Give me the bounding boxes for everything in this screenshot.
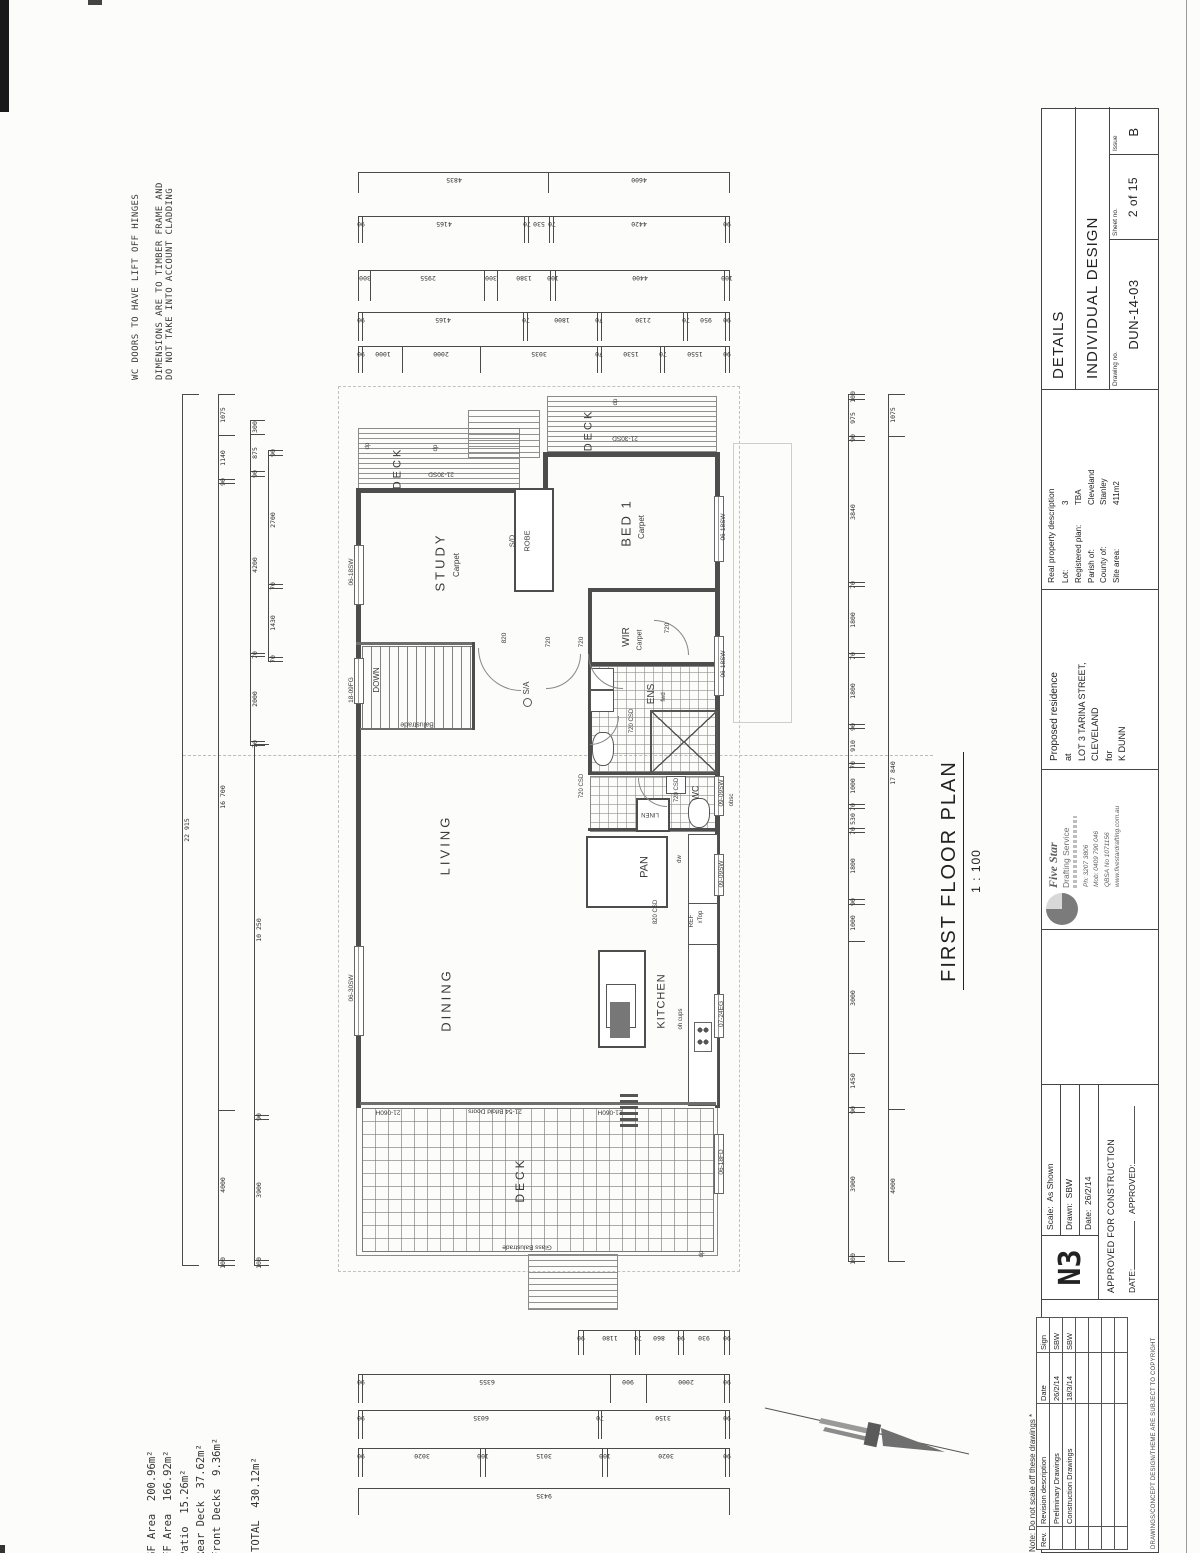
dim-value: 3035 [531,350,547,358]
dim-chain-b2: 906355900200090 [358,1374,730,1403]
cooktop [694,1022,712,1052]
date-label: Date: [1083,1210,1093,1230]
plan-label: 06-18SW [349,558,356,585]
dim-segment: 2000 [251,656,265,741]
dim-segment: 90 [725,217,730,243]
dim-segment: 300 [251,420,265,434]
details-title: DETAILS [1042,107,1076,389]
revision-row [1076,1318,1089,1550]
dim-value: 22 915 [183,818,191,841]
dim-segment: 860 [639,1331,677,1355]
dim-value: 4200 [251,557,259,573]
revision-header: Sign [1037,1318,1050,1353]
decorative: Date: 26/2/14 [1080,1085,1099,1235]
drawing-no-value: DUN-14-03 [1126,240,1141,389]
dim-value: 300 [251,421,259,433]
revision-cell-value [1089,1527,1102,1550]
dim-segment: 1140 [219,435,235,479]
dim-value: 3000 [849,990,857,1006]
dim-chain-L1: 22 915 [182,394,199,1266]
wall [356,642,475,645]
dim-value: 100 [255,1257,263,1269]
dim-value: 910 [849,740,857,752]
dim-value: 1550 [687,350,703,358]
dim-value: 100 [219,1257,227,1269]
dim-value: 530 [533,220,545,228]
dim-value: 4835 [446,176,462,184]
dim-value: 875 [251,447,259,459]
property-field: Registered plan:TBA [1073,390,1086,583]
plan-label: fwd [661,692,667,701]
bifold-door-line [360,1102,716,1105]
front-steps [528,1254,618,1310]
dim-value: 4000 [219,1178,227,1194]
revision-cell-value [1050,1527,1063,1550]
plan-label: DINING [440,968,453,1032]
property-field-value: 411m2 [1111,481,1124,505]
plan-label: STUDY [434,532,447,591]
area-line: Patio 15.26m² [177,1353,193,1553]
dim-chain-t5: 9010002000303570153070155090 [358,346,730,373]
area-total-text: TOTAL 430.12m² [248,1382,264,1552]
date-line-label: DATE: [1127,1269,1137,1293]
revision-row [1089,1318,1102,1550]
plan-label: ROBE [523,530,531,551]
dim-segment: 4165 [362,217,524,243]
plan-label: DECK [514,1157,526,1202]
revision-cell-value [1089,1404,1102,1527]
dim-value: 1000 [849,778,857,794]
sheet-no-value: 2 of 15 [1126,155,1140,239]
revision-cell-value: 26/2/14 [1050,1353,1063,1404]
scan-artifact [0,1545,5,1553]
dim-segment: 100 [724,271,730,301]
revision-cell-value [1076,1404,1089,1527]
revision-cell-value [1115,1527,1128,1550]
revision-cell-value [1115,1318,1128,1353]
dim-segment: 6035 [362,1411,597,1439]
dim-value: 100 [721,274,733,282]
window [354,545,364,605]
dim-segment: 1530 [601,347,661,373]
dim-value: 90 [723,1452,731,1460]
area-line: Front Decks 9.36m² [209,1353,225,1553]
plan-label: 09-09SW [719,860,726,887]
revision-header: Revision description [1037,1404,1050,1527]
plan-label: 21-060H [376,1108,401,1115]
property-header: Real property description [1046,390,1056,583]
scale-value: As Shown [1045,1163,1055,1201]
dim-value: 3020 [414,1452,430,1460]
dim-value: 3015 [536,1452,552,1460]
project-line: K DUNN [1116,590,1130,761]
dim-chain-t4: 9041657018007021307095090 [358,312,730,341]
dim-value: 6035 [473,1414,489,1422]
dim-value: 1380 [516,274,532,282]
revision-cell-value: Preliminary Drawings [1050,1404,1063,1527]
firm-tagline [1073,816,1077,888]
dim-value: 860 [653,1334,665,1342]
plan-label: DECK [393,447,404,490]
plan-label: dp [365,443,371,450]
plan-label: 09-09SW [719,779,726,806]
approved-line-label: APPROVED: [1127,1164,1137,1214]
plan-label: obsc [729,794,735,807]
dim-chain-b1: 901180708609093090 [578,1330,730,1355]
property-field-label: County of: [1098,505,1111,583]
dim-segment: 3150 [601,1411,724,1439]
island-sink-bowl [610,1002,630,1038]
dim-segment: 90 [725,313,730,341]
dim-value: 1000 [375,350,391,358]
dim-value: 1180 [602,1334,618,1342]
plan-label: 720 CSD [629,709,635,733]
issue-value: B [1126,110,1141,154]
window [354,946,364,1036]
dim-chain-L4: 90270070143070 [268,450,283,662]
dim-value: 4400 [632,274,648,282]
dim-segment: 875 [251,434,265,472]
dim-segment: 3840 [849,440,865,582]
dim-segment: 4200 [251,476,265,653]
revision-row [1102,1318,1115,1550]
revision-cell-value [1089,1353,1102,1404]
dim-segment: 9435 [358,1489,730,1515]
dim-value: 90 [723,1414,731,1422]
plan-label: DECK [584,409,595,452]
plan-label: 820 [502,633,509,644]
plan-label: 720 [546,637,553,648]
plan-label: WIR [622,627,632,646]
rear-deck-right [547,396,717,457]
dim-value: 100 [849,1253,857,1265]
property-field-value: Cleveland [1086,469,1099,505]
area-line: FF Area 166.92m² [160,1353,176,1553]
firm-cell: Five Star Drafting Service Ph: 3207 3806… [1042,769,1158,929]
dim-segment: 975 [849,399,865,436]
plan-label: 21-54 Bifold Doors [468,1107,522,1114]
bifold-stack [620,1094,638,1128]
plan-label: 720 CSD [579,774,585,798]
dim-segment: 10 250 [255,744,269,1115]
revision-cell-value [1115,1404,1128,1527]
decorative: N3 Scale: As Shown Drawn: SBW Date: 26/2… [1042,1085,1099,1299]
dim-value: 3150 [656,1414,672,1422]
property-field-value: Stanley [1098,478,1111,505]
details-cell: DETAILS INDIVIDUAL DESIGN Drawing no. DU… [1042,107,1158,389]
dim-segment: 2955 [370,271,484,301]
firm-logo [1046,893,1078,925]
dim-value: 6355 [479,1378,495,1386]
decorative: Real property description Lot:3Registere… [1042,390,1124,589]
project-line: for [1103,590,1117,761]
window [354,658,364,704]
dim-segment: 100 [849,1256,865,1262]
dim-value: 530 [849,813,857,825]
decorative: Five Star Drafting Service [1042,770,1078,929]
firm-contact-line: Mob: 0409 790 046 [1092,770,1102,887]
project-line: LOT 3 TARINA STREET, [1076,590,1090,761]
dim-chain-R2: 107517 8404000 [888,394,905,1262]
property-field-label: Parish of: [1086,505,1099,583]
sheet-edge-line [1186,0,1187,1553]
dim-segment: 1180 [583,1331,635,1355]
dim-note-line2: DO NOT TAKE INTO ACCOUNT CLADDING [165,110,175,380]
firm-contact: Ph: 3207 3806Mob: 0409 790 046QBSA No 10… [1078,770,1124,929]
dim-segment: 2000 [646,1375,725,1403]
dim-value: 950 [700,316,712,324]
plan-label: Carpet [638,515,646,539]
revision-table: Rev.Revision descriptionDateSignPrelimin… [1036,1317,1128,1550]
firm-contact-line: QBSA No 1071156 [1103,770,1113,887]
wall [472,642,475,730]
dim-segment: 1000 [362,347,401,373]
dim-segment: 1075 [219,394,235,435]
decorative: DATE: APPROVED: [1116,1085,1137,1299]
dim-value: 90 [723,220,731,228]
dim-value: 90 [723,316,731,324]
issue-cell: Issue B [1110,110,1158,154]
revision-cell: Note: Do not scale off these drawings * … [1042,1299,1158,1552]
project-description: Proposed residenceatLOT 3 TARINA STREET,… [1042,590,1130,769]
plan-label: BED 1 [620,499,633,547]
dim-segment: 3900 [255,1119,269,1261]
property-field-label: Registered plan: [1073,505,1086,583]
dim-segment: 2130 [601,313,684,341]
empty-cell [1042,929,1158,1084]
dim-value: 17 840 [889,761,897,784]
dim-segment: 1075 [889,394,905,436]
plan-label: S/A [523,682,531,695]
wc-note: WC DOORS TO HAVE LIFT OFF HINGES [131,112,147,380]
dim-value: 3840 [849,504,857,520]
vanity [590,690,614,712]
dim-value: 2700 [269,512,277,528]
dim-value: 3900 [255,1182,263,1198]
plan-label: 06-30SW [349,974,356,1001]
drawing-no-label: Drawing no. [1112,351,1119,386]
revision-row [1115,1318,1128,1550]
dim-value: 90 [723,350,731,358]
property-field: Lot:3 [1060,390,1073,583]
plan-label: 720 [579,637,586,648]
revision-row: Preliminary Drawings26/2/14SBW [1050,1318,1063,1550]
dim-segment: 16 700 [219,483,235,1109]
dim-segment: 22 915 [183,394,199,1266]
plan-label: 06-18SW [721,650,728,677]
property-field: Parish of:Cleveland [1086,390,1099,583]
dim-chain-t2: 9041657053070442090 [358,216,730,243]
dim-value: 10 250 [255,918,263,941]
dim-segment: 1800 [849,657,865,724]
revision-cell-value [1102,1353,1115,1404]
entry-steps [468,410,540,458]
section-line [183,755,933,756]
property-field-value: TBA [1073,489,1086,505]
drawn-value: SBW [1064,1179,1074,1198]
dim-value: 1800 [555,316,571,324]
plan-label: dw [677,855,683,863]
plan-label: 18-09FG [349,677,356,703]
dim-segment: 4000 [219,1110,235,1261]
dim-value: 1430 [269,615,277,631]
dim-segment: 300 [484,271,496,301]
dim-segment: 90 [725,1449,730,1477]
property-field-label: Site area: [1111,505,1124,583]
dim-value: 1800 [849,683,857,699]
revision-cell-value: SBW [1063,1318,1076,1353]
dim-segment: 4420 [553,217,725,243]
drawing-scale: 1 : 100 [969,737,983,1005]
dim-segment: 3035 [480,347,597,373]
plan-label: 06-18FD [719,1149,726,1174]
dim-segment: 4000 [889,1109,905,1262]
revision-cell-value: Construction Drawings [1063,1404,1076,1527]
stair-balustrade [360,728,472,730]
property-cell: Real property description Lot:3Registere… [1042,389,1158,589]
drawing-title: FIRST FLOOR PLAN 1 : 100 [938,737,1038,1005]
area-line: GF Area 200.96m² [144,1353,160,1553]
dim-value: 4165 [436,316,452,324]
dim-value: 70 [269,655,277,663]
dim-value: 300 [359,274,371,282]
drawing-title-text: FIRST FLOOR PLAN [938,752,964,990]
plan-label: xTop [698,911,704,924]
dim-chain-b4: 9030201003015100302090 [358,1448,730,1477]
plan-label: Glass Balustrade [502,1243,552,1250]
pantry [586,836,668,908]
stamp-cell: N3 Scale: As Shown Drawn: SBW Date: 26/2… [1042,1084,1158,1299]
design-type: INDIVIDUAL DESIGN [1076,107,1110,389]
dim-value: 1530 [623,350,639,358]
plan-label: 21-30SD [612,434,638,441]
revision-cell-value [1115,1353,1128,1404]
dim-chain-L5: 10 250903900100 [254,744,269,1266]
dim-segment: 90 [725,1411,730,1439]
date-line [1126,1221,1135,1269]
dim-segment: 90 [724,1375,729,1403]
project-line: Proposed residence [1047,590,1062,761]
dim-note-line1: DIMENSIONS ARE TO TIMBER FRAME AND [155,110,165,380]
dim-value: 9435 [536,1492,552,1500]
property-field-value: 3 [1060,501,1073,505]
dim-segment: 3020 [362,1449,480,1477]
revision-cell-value [1076,1527,1089,1550]
dim-value: 1800 [849,858,857,874]
scan-artifact [0,0,9,112]
scanned-drawing-sheet: WC DOORS TO HAVE LIFT OFF HINGES DIMENSI… [0,0,1200,1553]
dim-segment: 3020 [607,1449,725,1477]
plan-label: KITCHEN [657,973,668,1028]
revision-cell-value: 18/3/14 [1063,1353,1076,1404]
dim-value: 1140 [219,450,227,466]
area-schedule: GF Area 200.96m²FF Area 166.92m²Patio 15… [144,1353,236,1553]
plan-label: 720 [665,623,672,634]
decorative [881,1428,945,1452]
dim-segment: 1000 [849,904,865,942]
dim-segment: 3015 [485,1449,602,1477]
dim-chain-L3: 30087590420070200070 [250,420,265,746]
dim-segment: 4835 [358,173,548,193]
decorative: Scale: As Shown Drawn: SBW Date: 26/2/14 [1042,1085,1099,1235]
robe [514,488,554,592]
decorative: Lot:3Registered plan:TBAParish of:Clevel… [1060,390,1124,583]
dim-value: 4000 [889,1178,897,1194]
plan-label: 720 CSD [674,778,680,802]
dim-segment: 4600 [548,173,730,193]
dim-chain-b5: 9435 [358,1488,730,1515]
dim-chain-L2: 107511409016 7004000100 [218,394,235,1266]
wall [543,452,720,457]
decorative: Five Star Drafting Service [1046,816,1078,893]
dim-segment: 900 [610,1375,646,1403]
issue-label: Issue [1112,135,1119,151]
property-field: Site area:411m2 [1111,390,1124,583]
eave-outline [733,443,792,723]
dim-value: 4600 [631,176,647,184]
front-deck [362,1108,714,1252]
revision-cell-value: SBW [1050,1318,1063,1353]
dim-segment: 530 [849,808,865,829]
revision-row: Construction Drawings18/3/14SBW [1063,1318,1076,1550]
decorative [864,1422,881,1447]
dim-value: 1075 [219,407,227,423]
dim-chain-R1: 1009759038407018007018009091070100070530… [848,394,865,1262]
project-line: at [1062,590,1076,761]
revision-cell-value [1089,1318,1102,1353]
dim-segment: 3900 [849,1112,865,1257]
plan-label: LIVING [439,815,452,876]
plan-label: WC [692,786,701,801]
plan-label: 21-30SD [428,470,454,477]
wc-note-text: WC DOORS TO HAVE LIFT OFF HINGES [131,112,141,380]
dim-segment: 17 840 [889,436,905,1110]
plan-label: dp [699,1251,705,1258]
dim-value: 1075 [889,407,897,423]
decorative: FIRST FLOOR PLAN 1 : 100 [938,737,983,1005]
dim-segment: 1800 [849,586,865,653]
revision-header: Rev. [1037,1527,1050,1550]
dim-value: 900 [623,1378,635,1386]
dim-value: 90 [723,1334,731,1342]
decorative: Drawing no. DUN-14-03 Sheet no. 2 of 15 … [1110,107,1158,389]
dim-segment: 100 [255,1260,269,1266]
scan-artifact [88,0,102,5]
firm-name2: Drafting Service [1061,816,1071,888]
dim-value: 1000 [849,915,857,931]
plan-label: ENS [647,684,657,705]
dim-value: 4420 [631,220,647,228]
dim-segment: 1800 [849,832,865,899]
dim-segment: 2000 [402,347,480,373]
firm-contact-line: www.fivestardrafting.com.au [1113,770,1123,887]
dim-value: 2130 [635,316,651,324]
plan-label: PAN [640,856,651,878]
dim-segment: 100 [219,1260,235,1266]
scale-label: Scale: [1045,1206,1055,1230]
plan-label: 820 CSD [653,900,659,924]
dim-segment: 1550 [664,347,724,373]
dim-value: 930 [698,1334,710,1342]
dim-segment: 930 [683,1331,724,1355]
area-total: TOTAL 430.12m² [248,1382,266,1552]
project-line: CLEVELAND [1089,590,1103,761]
drawn-label: Drawn: [1064,1203,1074,1230]
dim-segment: 2700 [269,455,283,584]
decorative: Drawn: SBW [1061,1085,1080,1235]
property-field: County of:Stanley [1098,390,1111,583]
revision-cell-value [1076,1318,1089,1353]
